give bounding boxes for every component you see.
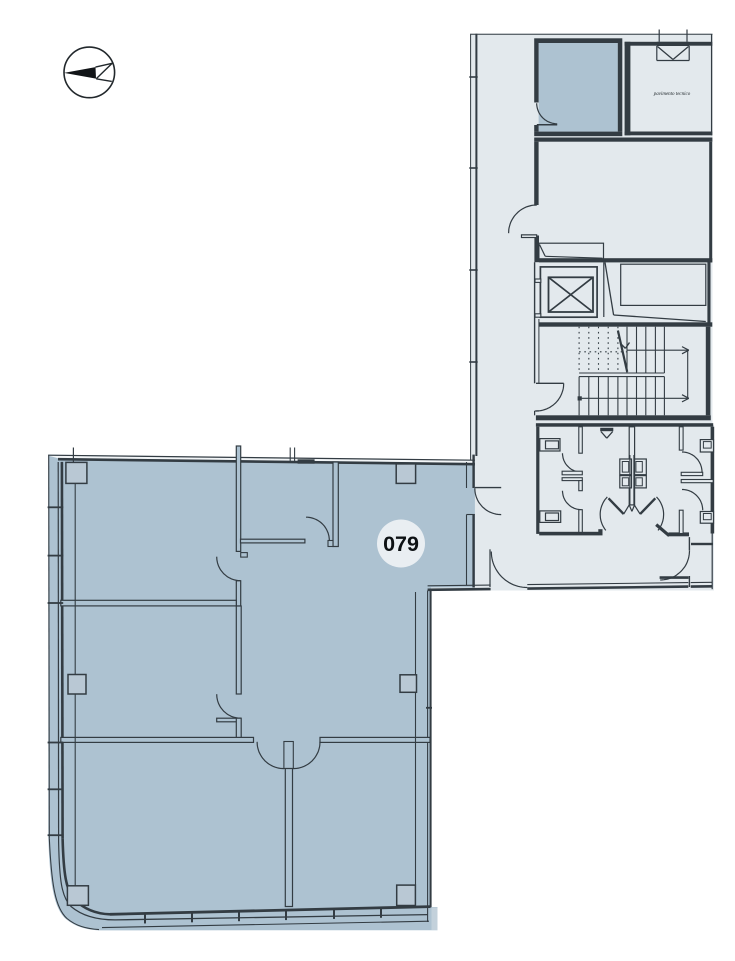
svg-text:079: 079: [383, 532, 419, 556]
svg-text:pavimento tecnico: pavimento tecnico: [653, 92, 691, 97]
